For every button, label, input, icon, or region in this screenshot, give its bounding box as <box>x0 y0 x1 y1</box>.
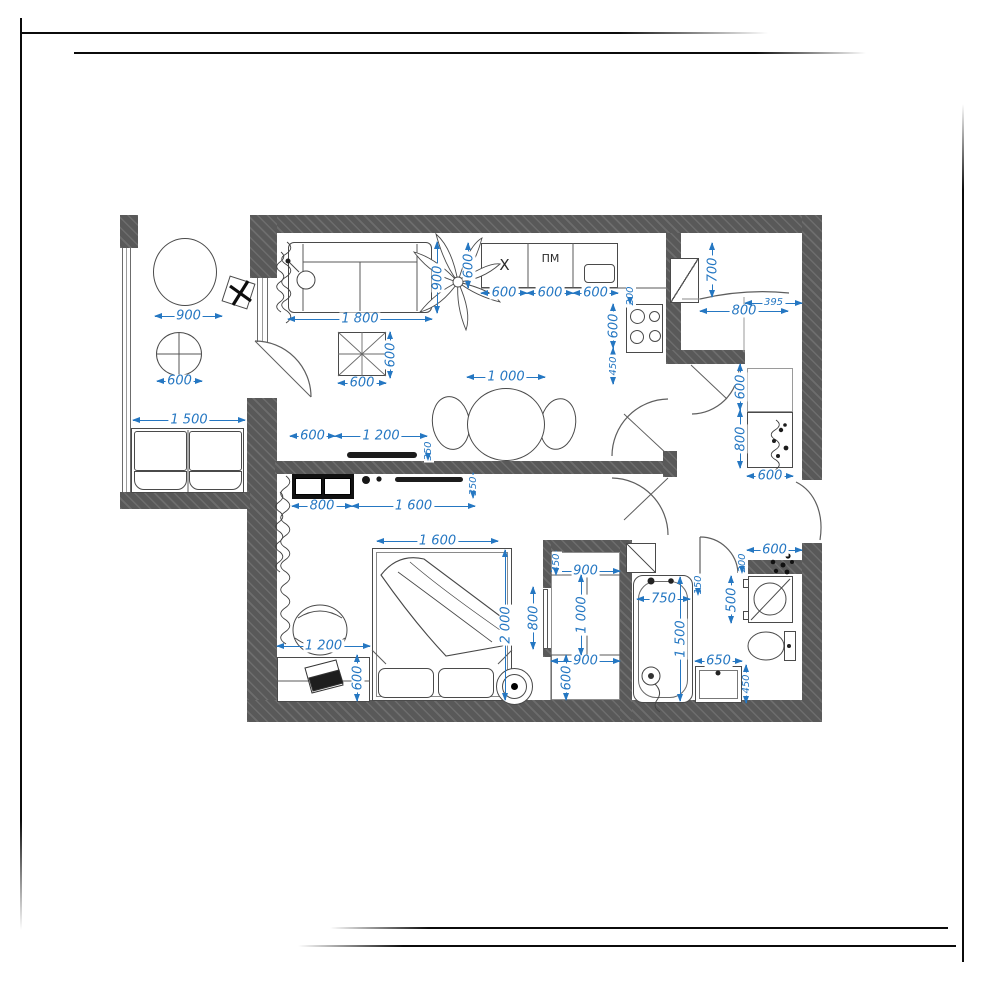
pillow <box>378 668 434 698</box>
wall-mid-post <box>663 451 677 477</box>
dim-counter-unit-3: 600 <box>573 293 618 294</box>
wall-entry-lower <box>666 350 745 364</box>
wall-left-bedroom <box>247 398 277 700</box>
dim-corridor-door: 800 <box>533 587 534 649</box>
dim-sofa-depth: 900 <box>437 242 438 313</box>
stove-burner <box>649 311 660 322</box>
dim-sofa-width: 1 800 <box>288 319 432 320</box>
frame-line-bottom-1 <box>330 927 948 929</box>
balcony-table-large <box>153 238 217 306</box>
frame-line-left <box>20 18 22 930</box>
wall-corridor-left-b <box>543 648 551 657</box>
dim-vanity-width: 650 <box>695 661 742 662</box>
floor-fan-hub <box>511 683 518 690</box>
dim-closet-bottom: 600 <box>566 655 567 700</box>
wall-right-lower <box>802 543 822 722</box>
balcony-window-left <box>122 248 131 492</box>
tv-living <box>347 452 417 458</box>
dim-balcony-table-large: 900 <box>155 316 222 317</box>
floor-plan-canvas: X ПМ <box>0 0 990 986</box>
wall-corridor-left-a <box>543 540 551 588</box>
stove-burner <box>649 330 661 342</box>
dim-vanity-depth: 450 <box>746 665 747 703</box>
dim-tv2-depth: 350 <box>473 473 474 498</box>
stove-burner <box>630 309 645 324</box>
frame-line-bottom-2 <box>298 945 956 947</box>
bath-shelf <box>626 543 656 573</box>
sink-unit-label: X <box>481 258 528 273</box>
frame-line-right <box>962 104 964 962</box>
dim-counter-depth: 600 <box>468 243 469 288</box>
dim-dining-table: 1 000 <box>467 377 545 378</box>
dim-entry-door: 800 <box>700 311 788 312</box>
dim-tv2-width: 1 600 <box>352 506 475 507</box>
corridor-sliding-door <box>543 589 548 649</box>
dim-entry-depth: 700 <box>712 243 713 297</box>
frame-line-top-1 <box>20 32 768 34</box>
dresser-drawer <box>324 478 351 495</box>
dim-tub-width: 750 <box>637 599 690 600</box>
dim-bed-length: 2 000 <box>505 550 506 700</box>
stove-burner <box>630 330 644 344</box>
dim-counter-gap: 200 <box>630 288 631 304</box>
dim-coffee-table-w: 600 <box>338 383 386 384</box>
wall-bottom <box>247 700 822 722</box>
wall-bath-top-right <box>745 560 802 574</box>
dim-balcony-sofa: 1 500 <box>133 420 245 421</box>
dim-coffee-table-h: 600 <box>390 332 391 378</box>
living-sofa <box>288 242 432 313</box>
dim-tv-offset: 600 <box>290 436 335 437</box>
kitchen-sink <box>584 264 615 283</box>
frame-line-top-2 <box>74 52 866 54</box>
dim-wardrobe-depth: 800 <box>740 410 741 468</box>
dim-balcony-table-small: 600 <box>157 381 202 382</box>
dim-washer-width: 500 <box>731 576 732 623</box>
coffee-table <box>338 332 386 376</box>
tv-bedroom <box>395 477 463 482</box>
wall-top <box>272 215 822 233</box>
dim-tub-length: 1 500 <box>680 577 681 701</box>
washer-bracket <box>743 579 749 588</box>
pillow <box>438 668 494 698</box>
dim-bed-width: 1 600 <box>377 541 498 542</box>
washer-bracket <box>743 611 749 620</box>
wall-right-upper <box>802 215 822 480</box>
dim-dresser-width: 800 <box>292 506 352 507</box>
dim-counter-unit-2: 600 <box>527 293 573 294</box>
dim-stove-width: 600 <box>613 304 614 348</box>
dim-tv-depth: 350 <box>428 441 429 460</box>
balcony-sofa-cushion <box>134 431 187 471</box>
wall-balcony-top <box>120 215 138 248</box>
dim-bath-shelf-gap: 200 <box>742 553 743 573</box>
dim-wardrobe-width: 600 <box>747 476 793 477</box>
wall-balcony-bottom <box>120 492 250 509</box>
dishwasher-label: ПМ <box>528 253 573 264</box>
dim-hall-opening: 600 <box>740 364 741 410</box>
dim-desk-depth: 600 <box>357 655 358 701</box>
wardrobe-upper <box>747 368 793 412</box>
entry-shelf <box>670 258 699 303</box>
dim-tv-width: 1 200 <box>335 436 427 437</box>
toilet-tank <box>784 631 796 661</box>
dresser-drawer <box>295 478 322 495</box>
dim-closet-height: 1 000 <box>581 575 582 655</box>
dim-entry-niche: 395 <box>745 303 802 304</box>
vanity-basin <box>699 670 738 699</box>
dim-closet-top: 450 <box>556 551 557 575</box>
balcony-sofa-seat <box>134 471 187 490</box>
balcony-stool <box>221 275 255 309</box>
dim-stove-offset: 450 <box>613 348 614 384</box>
balcony-partition-window <box>257 278 268 342</box>
dining-table <box>467 388 545 461</box>
balcony-sofa-seat <box>189 471 242 490</box>
wardrobe <box>747 412 793 468</box>
dim-closet-width-b: 900 <box>551 661 620 662</box>
washing-machine <box>748 576 793 623</box>
balcony-sofa-cushion <box>189 431 242 471</box>
dim-bath-shelf-width: 600 <box>747 550 802 551</box>
wall-balcony-divider <box>250 215 277 278</box>
balcony-table-small <box>156 332 202 376</box>
dim-desk-width: 1 200 <box>277 646 370 647</box>
dim-tub-gap: 150 <box>698 575 699 595</box>
dim-counter-unit-1: 600 <box>481 293 527 294</box>
